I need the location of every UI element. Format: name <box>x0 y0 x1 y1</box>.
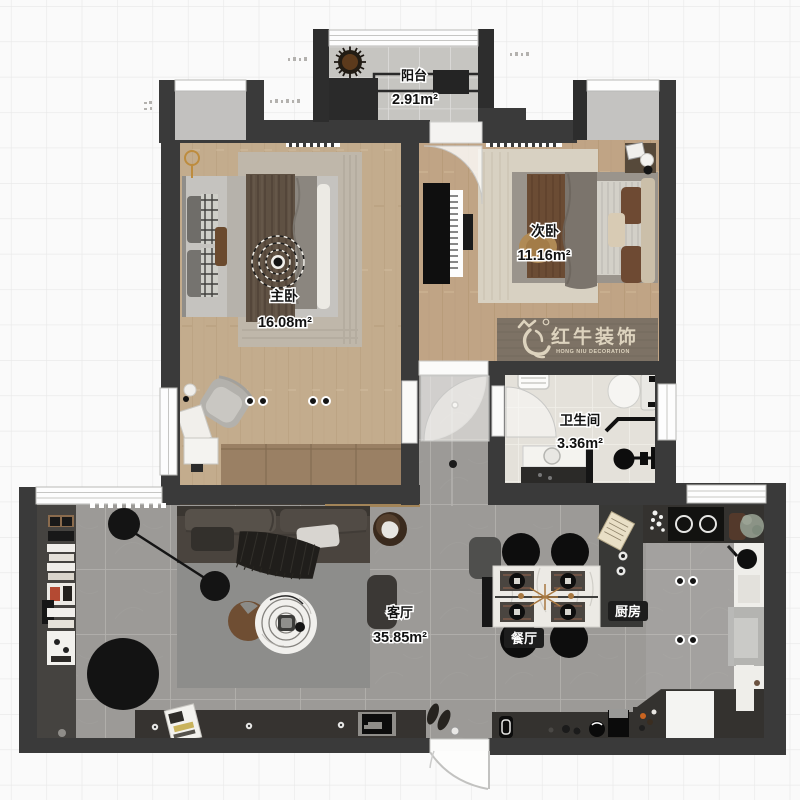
svg-text:卫生间: 卫生间 <box>560 412 601 428</box>
svg-text:HONG NIU DECORATION: HONG NIU DECORATION <box>556 349 630 355</box>
svg-text:红牛装饰: 红牛装饰 <box>551 325 639 348</box>
svg-text:11.16m²: 11.16m² <box>517 248 570 264</box>
svg-text:2.91m²: 2.91m² <box>392 92 438 108</box>
svg-text:35.85m²: 35.85m² <box>373 630 427 646</box>
svg-text:3.36m²: 3.36m² <box>557 436 603 452</box>
svg-text:客厅: 客厅 <box>387 605 413 620</box>
svg-text:餐厅: 餐厅 <box>510 631 537 646</box>
svg-text:16.08m²: 16.08m² <box>258 315 312 331</box>
svg-text:厨房: 厨房 <box>615 604 641 619</box>
svg-text:次卧: 次卧 <box>531 223 559 239</box>
svg-text:阳台: 阳台 <box>401 68 427 83</box>
svg-text:主卧: 主卧 <box>270 288 298 304</box>
